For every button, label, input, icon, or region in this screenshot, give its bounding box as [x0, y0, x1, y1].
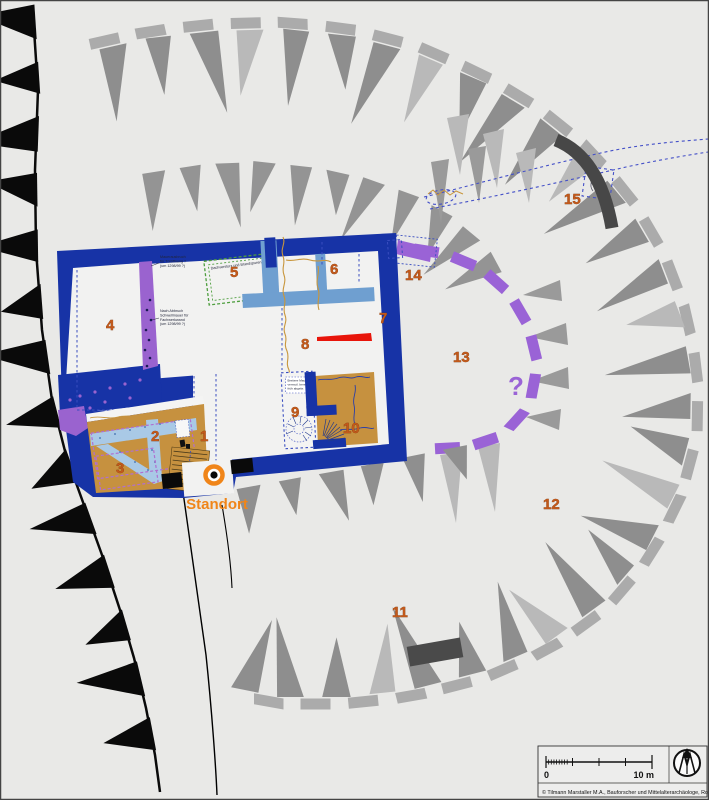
svg-text:für Türöffnung ?: für Türöffnung ? — [160, 260, 186, 264]
svg-text:Schwellmauer für: Schwellmauer für — [160, 313, 189, 317]
area-label-1: 1 — [200, 428, 208, 445]
area-label-7: 7 — [379, 310, 387, 327]
area-label-11: 11 — [392, 604, 408, 621]
credit-line: © Tilmann Marstaller M.A., Bauforscher u… — [542, 789, 709, 796]
scale-label-ten: 10 m — [633, 770, 654, 780]
legend: 0 10 m © Tilmann Marstaller M.A., Baufor… — [538, 746, 709, 797]
area-label-6: 6 — [330, 261, 338, 278]
svg-text:(um 1298/99 ?): (um 1298/99 ?) — [160, 322, 185, 326]
uncertain-wall-question-mark: ? — [508, 371, 524, 401]
svg-text:Nach Abbruch: Nach Abbruch — [160, 309, 183, 313]
area-label-10: 10 — [343, 420, 360, 437]
room9-note-line: früh abgebr. — [288, 387, 305, 391]
svg-text:Fachwerkwand: Fachwerkwand — [160, 318, 185, 322]
site-plan-svg: Dachversturz und Brandspuren — [0, 0, 709, 800]
area-label-9: 9 — [291, 404, 299, 421]
area-label-13: 13 — [453, 349, 470, 366]
castle-site-plan: Dachversturz und Brandspuren — [0, 0, 709, 800]
scale-label-zero: 0 — [544, 770, 549, 780]
area-label-3: 3 — [116, 460, 124, 477]
svg-text:Mauerausbruch: Mauerausbruch — [160, 255, 186, 259]
area-label-12: 12 — [543, 496, 560, 513]
area-label-4: 4 — [106, 317, 115, 334]
area-label-15: 15 — [564, 191, 581, 208]
standort-marker — [206, 467, 223, 484]
area-label-14: 14 — [405, 267, 422, 284]
area-label-5: 5 — [230, 264, 238, 281]
standort-label: Standort — [186, 496, 248, 513]
area-label-8: 8 — [301, 336, 309, 353]
door-patch — [175, 419, 190, 437]
area-label-2: 2 — [151, 428, 159, 445]
black-post — [186, 444, 190, 449]
wall-pier — [264, 237, 277, 268]
svg-text:(um 1298/99 ?): (um 1298/99 ?) — [160, 264, 185, 268]
gate-jamb-right — [230, 458, 253, 474]
gate-jamb-left — [161, 472, 182, 489]
